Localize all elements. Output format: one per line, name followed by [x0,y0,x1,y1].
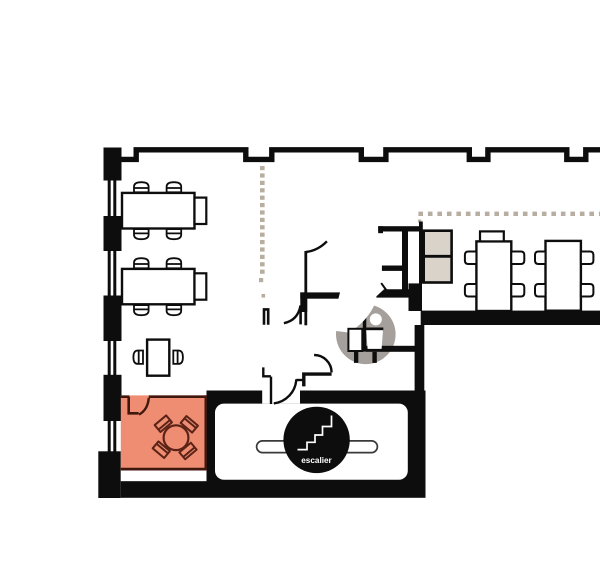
svg-text:escalier: escalier [301,456,332,465]
